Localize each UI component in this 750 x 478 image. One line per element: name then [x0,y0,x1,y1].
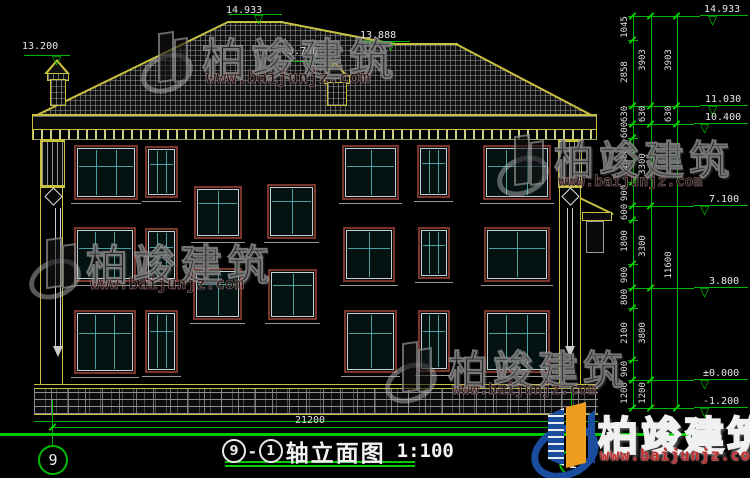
dim-value: 1045 [620,9,630,45]
dim-value: 11600 [664,247,674,283]
watermark-url: www.baijunjz.com [206,68,370,88]
logo-building-icon [588,410,595,464]
side-eave-fascia [582,212,612,221]
dim-connector [628,206,694,207]
watermark-logo-icon [28,236,86,298]
stair-window [267,184,316,239]
dim-connector [628,16,700,17]
dim-value: 3300 [638,228,648,264]
total-width-dim: 21200 [280,415,340,426]
title-axis-dash: - [249,442,256,461]
cornice-frieze [32,116,597,130]
downspout-right [567,208,573,346]
elevation-label: 3.800 [709,276,739,287]
side-pier [586,221,604,253]
watermark-logo-icon [140,30,198,92]
roof-lower-ridge-line [393,43,458,45]
bottom-dim-line [52,427,571,428]
title-scale: 1:100 [397,440,454,462]
window [342,145,399,200]
chimney-left-body [50,79,66,106]
watermark-logo-icon [384,340,442,402]
pilaster-right-pendant [561,187,579,205]
dim-value: 630 [638,96,648,132]
cornice-end-left [32,114,33,140]
watermark-url: www.baijunjz.com [558,172,703,190]
logo-building-icon [566,402,586,468]
elevation-triangle-icon: ▽ [700,287,709,297]
logo-building-icon [548,408,564,466]
dim-value: 3903 [664,42,674,78]
pilaster-left-pendant [44,187,62,205]
window [417,145,450,198]
window [74,310,136,374]
axis-extension-left [52,400,53,445]
elevation-label: 7.100 [709,194,739,205]
elevation-line [24,55,70,56]
dim-value: 3903 [638,42,648,78]
logo-url-text: www.baijunjz.com [600,446,750,464]
dim-connector [628,288,694,289]
watermark-url: www.baijunjz.com [90,274,244,293]
watermark-logo-icon [496,133,554,195]
axis-bubble-left: 9 [38,445,68,475]
window [74,145,138,200]
elevation-label: 13.200 [22,41,58,52]
dim-value: 800 [620,279,630,315]
axis-number: 9 [48,451,57,469]
window [484,227,550,282]
dim-value: 2858 [620,54,630,90]
window [343,227,395,282]
elevation-triangle-icon: ▽ [708,15,717,25]
dim-value: 1800 [620,223,630,259]
dimension-chain-mid [651,16,652,408]
brand-logo: 柏竣建筑 www.baijunjz.com [530,402,750,478]
window [145,146,178,198]
dimension-chain-inner [633,16,634,408]
window [145,310,178,373]
stair-window [268,269,317,320]
drawing-title: 9 - 1 轴立面图 1:100 [222,434,454,468]
pilaster-left-capital [41,139,65,188]
dim-value: 3800 [638,315,648,351]
elevation-triangle-icon: ▽ [254,14,263,24]
elevation-triangle-icon: ▽ [700,205,709,215]
title-axis-start-bubble: 9 [222,439,246,463]
elevation-drawing-canvas: 13.200 ▽ 14.933 ▽ 13.888 ▽ 13.700 ▽ 14.9… [0,0,750,478]
elevation-triangle-icon: ▽ [700,379,709,389]
title-text: 轴立面图 [286,434,386,468]
watermark-url: www.baijunjz.com [452,380,597,398]
dimension-chain-outer [677,16,678,408]
elevation-label: 10.400 [705,112,741,123]
downspout-left-tip [53,346,63,357]
dim-value: 630 [664,96,674,132]
elevation-triangle-icon: ▽ [52,55,61,65]
window [418,227,450,279]
title-axis-end-bubble: 1 [259,439,283,463]
